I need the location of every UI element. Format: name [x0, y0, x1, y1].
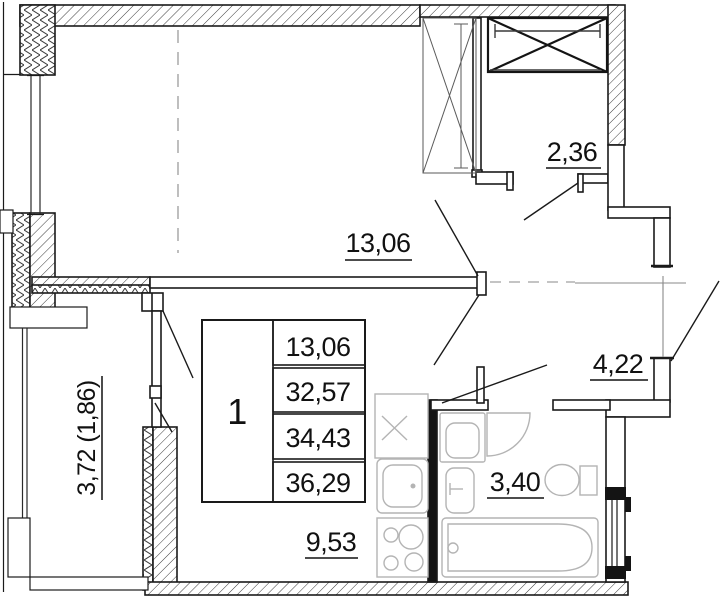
info-row-2: 34,43: [285, 423, 350, 453]
wall-left-mid-insulation: [12, 213, 30, 310]
kitchen-cabinet-icon: [375, 394, 428, 458]
balcony-sill: [10, 307, 87, 328]
wall-left-mid: [30, 213, 55, 310]
wall-kitchen-balcony-insulation: [143, 427, 153, 590]
closet-door-jamb-right-cap: [578, 174, 583, 192]
wall-living-bottom: [150, 277, 478, 288]
entrance-door-stop-top: [625, 497, 631, 512]
washing-machine-icon: [440, 413, 485, 462]
floor-plan-svg: 13,06 2,36 4,22 3,40 9,53 3,72 (1,86) 1 …: [0, 0, 722, 600]
toilet-icon: [545, 465, 597, 496]
wall-right-step-h: [608, 207, 670, 218]
apartment-number: 1: [227, 391, 247, 432]
closet-door-jamb-left-cap: [507, 172, 513, 190]
kitchen-area-label: 9,53: [306, 527, 357, 557]
info-row-0: 13,06: [285, 332, 350, 362]
wardrobe-cross-icon: [488, 18, 607, 72]
balcony-bottom-edge: [30, 577, 148, 590]
living-opening-line-upper: [435, 200, 478, 276]
info-row-1: 32,57: [285, 377, 350, 407]
wall-closet-left: [473, 18, 481, 173]
living-area-label: 13,06: [345, 228, 410, 258]
wall-right-upper: [608, 145, 624, 210]
info-row-3: 36,29: [285, 468, 350, 498]
bath-door-leader: [442, 365, 547, 403]
wall-bath-pipe-stub: [477, 367, 484, 403]
washbasin-icon: [446, 468, 474, 513]
wall-entry-jog-v: [654, 358, 670, 402]
balcony-door-swing: [163, 311, 193, 378]
bath-area-label: 3,40: [490, 467, 541, 497]
wall-right-top: [608, 5, 625, 145]
balcony-area-label: 3,72 (1,86): [73, 380, 101, 495]
entrance-door-hinge-bottom: [605, 566, 626, 579]
kitchen-sink-icon: [377, 459, 428, 513]
closet-area-label: 2,36: [547, 137, 598, 167]
balcony-end-block: [8, 518, 30, 577]
wall-bath-top-right: [553, 400, 610, 410]
sliding-wardrobe-icon: [423, 18, 476, 173]
balcony-wall-nub: [0, 210, 13, 233]
closet-door-swing: [524, 183, 578, 220]
balcony-area-label-group: 3,72 (1,86): [73, 376, 102, 500]
hall-area-label: 4,22: [593, 349, 644, 379]
wall-top-right-span: [420, 5, 615, 17]
exterior-walls: [12, 5, 628, 595]
info-table: 1 13,06 32,57 34,43 36,29: [202, 320, 365, 502]
stove-icon: [377, 518, 428, 577]
wall-kitchen-balcony: [153, 427, 177, 590]
wall-top-left-span: [20, 5, 420, 26]
entrance-door-stop-bottom: [625, 556, 631, 571]
wall-bottom: [145, 582, 628, 595]
wall-living-balcony-insulation: [32, 285, 150, 293]
bathtub-icon: [442, 518, 598, 577]
living-opening-line-lower: [434, 295, 479, 365]
entry-door-swing: [671, 281, 719, 361]
fixtures: [375, 394, 598, 577]
wall-topleft-corner: [20, 5, 55, 75]
entrance-door-hinge-top: [605, 487, 626, 500]
bath-door-swing-icon: [487, 413, 530, 456]
wall-entry-jog-h: [606, 400, 670, 417]
wall-right-step-v: [654, 218, 670, 267]
wall-vent-box: [150, 386, 161, 398]
wall-bath-left: [428, 400, 437, 582]
floor-plan-page: 13,06 2,36 4,22 3,40 9,53 3,72 (1,86) 1 …: [0, 0, 722, 600]
